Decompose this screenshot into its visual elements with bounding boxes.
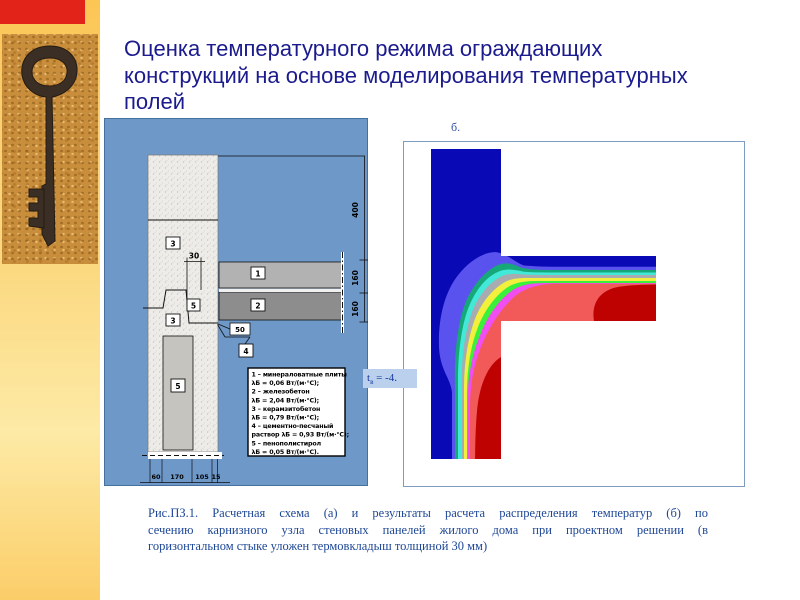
callout-panel-2: 2 <box>255 302 260 311</box>
legend-line: λБ = 0,06 Вт/(м·°С); <box>252 379 320 387</box>
legend-line: 2 – железобетон <box>252 388 310 396</box>
temperature-field <box>431 149 664 472</box>
red-accent-bar <box>0 0 85 24</box>
figure-b-temperature-field <box>403 141 745 487</box>
legend-line: 3 – керамзитобетон <box>252 405 321 413</box>
legend-line: 4 – цементно-песчаный <box>252 422 334 430</box>
callout-wall-upper: 3 <box>170 240 175 249</box>
dim-400: 400 <box>351 202 360 218</box>
title-line-1: Оценка температурного режима ограждающих <box>124 36 794 63</box>
dim-50: 50 <box>235 326 245 334</box>
presentation-slide: Оценка температурного режима ограждающих… <box>0 0 800 600</box>
old-key-icon <box>2 34 98 264</box>
dim-160-top: 160 <box>351 270 360 286</box>
dim-bottom-105: 105 <box>195 473 209 481</box>
legend-line: 1 – минераловатные плиты <box>252 372 348 379</box>
dim-bottom-15: 15 <box>211 473 221 481</box>
dim-bottom-170: 170 <box>170 473 184 481</box>
page-title: Оценка температурного режима ограждающих… <box>124 36 794 116</box>
horizontal-joint-gap <box>219 289 342 292</box>
temp-value: = -4. <box>373 372 397 384</box>
key-photo <box>2 34 98 264</box>
panel-2 <box>219 292 342 320</box>
legend-line: 5 – пенополистирол <box>252 440 322 447</box>
callout-mortar: 4 <box>243 347 248 356</box>
caption-line-3: горизонтальном стыке уложен термовкладыш… <box>148 538 708 555</box>
callout-insulation: 5 <box>175 382 180 391</box>
legend-line: λБ = 0,79 Вт/(м·°С); <box>252 414 320 422</box>
insulation-strip <box>163 336 193 450</box>
interior-temperature-label: tв = -4. <box>363 369 417 388</box>
figure-a-schematic: 400 160 160 30 50 <box>104 118 368 486</box>
figure-b-label: б. <box>451 120 460 135</box>
callout-wall-lower: 3 <box>170 317 175 326</box>
caption-line-1: Рис.ПЗ.1. Расчетная схема (а) и результа… <box>148 505 708 522</box>
title-line-3: полей <box>124 89 794 116</box>
title-line-2: конструкций на основе моделирования темп… <box>124 63 794 90</box>
legend-line: раствор λБ = 0,93 Вт/(м·°С); <box>252 431 349 439</box>
figure-caption: Рис.ПЗ.1. Расчетная схема (а) и результа… <box>148 505 708 555</box>
dim-bottom-60: 60 <box>151 473 161 481</box>
dim-30: 30 <box>189 252 199 261</box>
legend-line: λБ = 2,04 Вт/(м·°С); <box>252 396 320 404</box>
callout-joint: 5 <box>191 302 196 311</box>
caption-line-2: сечению карнизного узла стеновых панелей… <box>148 522 708 539</box>
callout-panel-1: 1 <box>255 270 260 279</box>
panel-1 <box>219 262 342 288</box>
legend-line: λБ = 0,05 Вт/(м·°С). <box>252 448 319 456</box>
dim-160-bottom: 160 <box>351 301 360 317</box>
